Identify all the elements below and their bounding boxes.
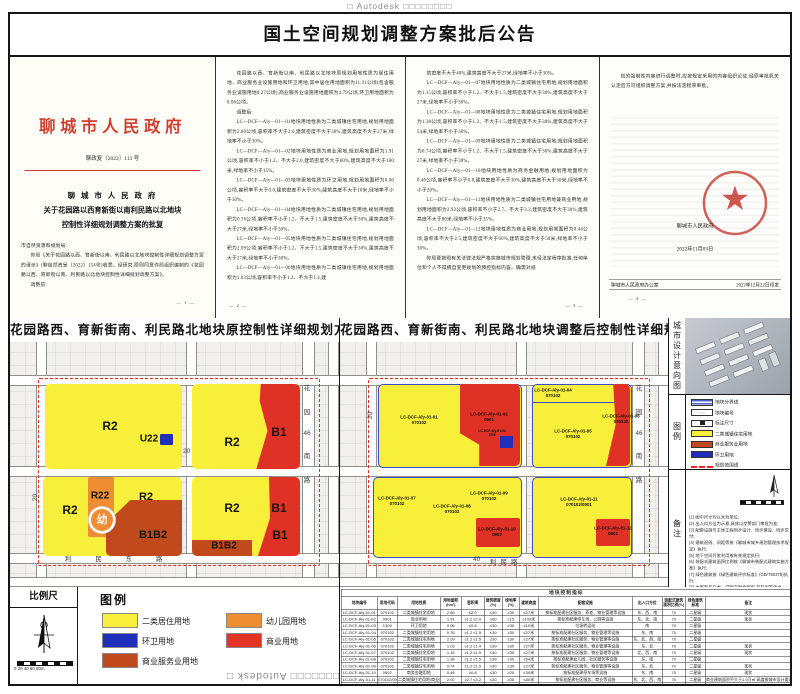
seal-date: 2022年11月03日 <box>600 245 790 253</box>
table-cell: 70 <box>662 636 685 643</box>
table-cell: ≥15 <box>502 616 519 623</box>
letter-title-line1: 聊 城 市 人 民 政 府 <box>10 190 215 201</box>
road-width-label: 20 <box>183 448 190 455</box>
notes-section: 备注 (1) 图中尺寸均以米为单位;(2) 出入口方位为示意,具体以交警部门审批… <box>669 470 790 587</box>
table-cell: 按标准配建社区服务、养老、物业管理等设施 <box>538 609 632 616</box>
table-cell: 2.09 <box>440 636 461 643</box>
table-cell: 70 <box>662 663 685 670</box>
table-cell: ≤100米 <box>519 616 538 623</box>
table-row: LC-DCF-Aly-01-08070102二类城镇住宅用地1.38≥1.2 ≤… <box>341 656 790 663</box>
table-cell: LC-DCF-Aly-01-03 <box>341 623 377 630</box>
table-cell: 70 <box>662 609 685 616</box>
letter-paragraph: LC—DCF—Aly—01—07地块用地性质为二类城镇住宅用地,规划用地面积为1… <box>417 79 588 108</box>
table-cell: 东、北 <box>632 663 662 670</box>
table-cell: 0901 <box>377 616 397 623</box>
table-cell: ≥1.2 ≤1.5 <box>461 656 484 663</box>
zone-label: R2 <box>62 503 77 517</box>
table-cell: 现状 <box>705 670 790 677</box>
design-intent-image <box>685 318 790 394</box>
table-cell: 按标准配建社区服务、物业管理等设施 <box>538 636 632 643</box>
table-cell: 商业用地 <box>397 616 440 623</box>
table-cell: ≥30 <box>502 643 519 650</box>
table-cell: ≥30 <box>502 663 519 670</box>
table-cell: ≥1.2 ≤1.5 <box>461 636 484 643</box>
letter-paragraph: LC—DCF—Aly—01—01地块用地性质为二类城镇住宅用地,规划用地面积为2… <box>227 118 394 147</box>
table-cell: ≤50米 <box>519 683 538 684</box>
table-cell: 二星级 <box>685 629 705 636</box>
zone-label: R2 <box>224 435 239 449</box>
letter-paragraphs: 划的强制性内容进行调整时,应按规定采用的内容组织论证,经原审批机关认定后方可组织… <box>611 72 779 91</box>
zone-label: B1B2 <box>139 529 167 541</box>
table-cell: ≥1.2 ≤1.5 <box>461 629 484 636</box>
table-cell: ≥30 <box>502 649 519 656</box>
table-cell: 070102 <box>377 656 397 663</box>
map-legend-title: 图例 <box>669 395 686 469</box>
table-cell <box>705 656 790 663</box>
table-cell: 1.91 <box>440 616 461 623</box>
table-cell: LC-DCF-Aly-01-05 <box>341 636 377 643</box>
zone-label: R2 <box>224 501 239 515</box>
table-row: LC-DCF-Aly-01-09070102二类城镇住宅用地0.74≥1.2 ≤… <box>341 663 790 670</box>
table-cell: 二星级 <box>685 683 705 684</box>
letter-paragraph: LC—DCF—Aly—01—09地块用地性质为二类城镇住宅用地,规划用地面积为0… <box>417 137 588 166</box>
table-cell: 070102/0901 <box>377 676 397 683</box>
table-cell: 0.44 <box>440 683 461 684</box>
control-indicators-panel: 地块控制指标 地块编号用地代码用地性质用地面积(hm²)容积率建筑密度(%)绿地… <box>340 587 790 684</box>
table-cell: ≤30 <box>484 676 502 683</box>
table-cell: ≤30 <box>484 649 502 656</box>
table-cell: 按标准配建社区服务、物业管理等设施 <box>538 629 632 636</box>
scale-panel: 比例尺 0 20 40 60 80m <box>10 587 78 684</box>
table-cell <box>705 629 790 636</box>
notes-list: (1) 图中尺寸均以米为单位;(2) 出入口方位为示意,具体以交警部门审批为准;… <box>689 514 789 587</box>
table-row: LC-DCF-Aly-01-120901商业用地0.44≤2.5≤60≥30≤5… <box>341 683 790 684</box>
table-cell: 北、西、南 <box>632 649 662 656</box>
letter-paragraph: LC—DCF—Aly—01—04地块用地性质为二类城镇住宅用地,规划用地面积为0… <box>227 205 394 234</box>
zone-label: B1B2 <box>211 541 237 552</box>
table-title: 地块控制指标 <box>341 589 790 597</box>
letter-paragraph: LC—DCF—Aly—01—05地块用地性质为二类城镇住宅用地,规划用地面积为2… <box>227 234 394 263</box>
table-cell: 二星级 <box>685 623 705 630</box>
control-indicators-table: 地块控制指标 地块编号用地代码用地性质用地面积(hm²)容积率建筑密度(%)绿地… <box>341 589 790 684</box>
design-intent-title: 城市设计意向图 <box>669 318 686 394</box>
parcel-label: LC-DCF-Aly-01-100902 <box>478 527 515 538</box>
note-line: (7) 绿色建筑按《绿色建筑评价标准》(GB/T50378)执行; <box>689 571 789 584</box>
parcel-label: LC-DCF-Aly-01-020901 <box>470 412 507 423</box>
table-cell: 70 <box>662 683 685 684</box>
table-header-row: 地块编号用地代码用地性质用地面积(hm²)容积率建筑密度(%)绿地率(%)建筑高… <box>341 597 790 610</box>
table-cell: ≥0.8 <box>461 670 484 677</box>
residential-swatch <box>691 430 713 437</box>
table-cell: 070102 <box>377 663 397 670</box>
table-cell: 二星级 <box>685 676 705 683</box>
letter-paragraph: 你局要按照有关法律法规严格实施城市规划管理,未经法定程序批准,任何单位和个人不得… <box>417 254 588 273</box>
letter-paragraphs: 筑密度不大于40%,建筑高度不大于27米,绿地率不小于30%。LC—DCF—Al… <box>417 69 588 273</box>
boundary-line-swatch <box>691 399 713 406</box>
aerial-render <box>685 318 790 395</box>
table-row: LC-DCF-Aly-01-020901商业用地1.91≥1.2 ≤2.0≤60… <box>341 616 790 623</box>
letter-paragraph: LC—DCF—Aly—01—12地块用地性质为商业用地,规划用地面积为0.44公… <box>417 225 588 254</box>
table-cell: 二星级 <box>685 643 705 650</box>
table-cell: 东、北、南 <box>632 616 662 623</box>
table-cell: 0901 <box>377 683 397 684</box>
letter-paragraph: 调整前: <box>21 280 204 290</box>
road <box>10 577 339 587</box>
map-adjusted-panel: 花园路西、育新街南、利民路北地块调整后控制性详细规划方案 <box>340 318 669 587</box>
letter-page-1: 聊城市人民政府 聊政复〔2022〕113 号 聊 城 市 人 民 政 府 关于花… <box>10 57 216 318</box>
table-cell: ≤54米 <box>519 656 538 663</box>
table-cell: ≤27米 <box>519 663 538 670</box>
page-number-1: — 1 — <box>177 300 196 305</box>
table-cell: 二星级 <box>685 656 705 663</box>
legend-label: 环卫用地 <box>142 636 174 647</box>
table-cell: ≤27米 <box>519 629 538 636</box>
zone-label: R2 <box>139 491 153 503</box>
table-cell: ≥1.2 ≤2.0 <box>461 616 484 623</box>
table-cell: 二星级 <box>685 663 705 670</box>
table-row: LC-DCF-Aly-01-07070102二类城镇住宅用地1.15≥1.2 ≤… <box>341 649 790 656</box>
map-original: R2 U22 R2 B1 R2 R22 幼 R2 B1B2 R2 B1 B1 B… <box>10 342 339 587</box>
table-cell: 按标准配建停车场、公厕等设施 <box>538 616 632 623</box>
table-cell: LC-DCF-Aly-01-02 <box>341 616 377 623</box>
autod esk-watermark-bottom: □□□□□□□ Autodesk □ <box>226 670 339 681</box>
table-cell: 0.46 <box>440 670 461 677</box>
scale-bar <box>740 500 784 505</box>
table-cell: 二类城镇住宅用地 <box>397 629 440 636</box>
table-cell: ≥30 <box>502 629 519 636</box>
table-cell: 70 <box>662 649 685 656</box>
imprint-date: 2022年12月22日印发 <box>736 281 779 288</box>
road-name-huayuan: 花 园 46 南 路 <box>632 382 646 484</box>
table-cell: ≤27米 <box>519 609 538 616</box>
page-number-4: — 4 — <box>628 296 647 301</box>
table-cell: ≥20 <box>502 670 519 677</box>
road-name-huayuan: 花 园 46 南 路 <box>300 382 314 484</box>
zone-label: B1 <box>271 425 286 439</box>
table-cell: 二类城镇住宅用地 <box>397 656 440 663</box>
table-cell: 二类城镇住宅用地 <box>397 663 440 670</box>
letterhead-rule <box>24 170 200 171</box>
table-row: LC-DCF-Aly-01-031309环卫用地0.06≤0.8≤30≥30≤1… <box>341 623 790 630</box>
table-cell: ≤30 <box>484 623 502 630</box>
table-cell: 二类城镇住宅用地 <box>397 643 440 650</box>
notes-title: 备注 <box>669 470 686 587</box>
letter-paragraph: LC—DCF—Aly—01—10地块用地性质为商务金融用地,规划用地面积为0.4… <box>417 166 588 195</box>
table-cell: ≥1.2 ≤1.4 <box>461 643 484 650</box>
scale-ticks: 0 20 40 60 80m <box>14 666 45 671</box>
table-cell: 二类城镇住宅用地 <box>397 649 440 656</box>
table-cell: LC-DCF-Aly-01-10 <box>341 670 377 677</box>
seal-agency-name: 聊城市人民政府 <box>600 222 790 230</box>
table-cell: LC-DCF-Aly-01-06 <box>341 643 377 650</box>
legend-swatch <box>102 653 138 668</box>
table-cell: 070102 <box>377 609 397 616</box>
doc-number: 聊政复〔2022〕113 号 <box>10 154 215 162</box>
table-cell: ≤27米 <box>519 636 538 643</box>
table-cell: 二星级 <box>685 616 705 623</box>
table-cell: ≥1.2 ≤1.5 <box>461 649 484 656</box>
table-cell: 现状 <box>705 663 790 670</box>
table-cell: 按标准配建社区服务、物业管理等设施 <box>538 643 632 650</box>
parcel-code-swatch: ··-·· <box>691 409 713 416</box>
table-cell: ≤60 <box>484 683 502 684</box>
imprint-line: 聊城市人民政府办公室 2022年12月22日印发 <box>609 279 781 290</box>
table-row: LC-DCF-Aly-01-01070102二类城镇住宅用地2.80≤2.0≤3… <box>341 609 790 616</box>
legend-swatch <box>102 633 138 648</box>
parcel-label: LC-DCF-Aly-01-07070102 <box>378 496 415 507</box>
map-legend-section: 图例 地块分界线 ··-··地块编号 标注尺寸 二类城镇住宅用地 商业服务业用地… <box>669 395 790 470</box>
table-cell: 现状 <box>705 683 790 684</box>
north-arrow-icon <box>766 474 782 498</box>
letter-title-line2: 关于花园路以西育新街以南利民路以北地块 <box>10 205 215 216</box>
table-cell: ≥1.2 ≤1.5 <box>461 663 484 670</box>
table-cell: ≥35 <box>502 676 519 683</box>
table-cell: LC-DCF-Aly-01-04 <box>341 629 377 636</box>
table-cell: 东、南 <box>632 683 662 684</box>
north-compass-icon <box>30 613 58 655</box>
boundary-dashed-swatch <box>691 466 713 468</box>
table-cell: ≤30 <box>484 656 502 663</box>
zone-label: B1 <box>272 528 287 542</box>
parcel-label: LC-DCF-Aly-01-05070102 <box>554 429 591 440</box>
table-cell: ≥30 <box>502 683 519 684</box>
table-cell: LC-DCF-Aly-01-12 <box>341 683 377 684</box>
table-cell: 现状 <box>705 649 790 656</box>
letter-paragraphs: 你局《关于花园路以西、育新街以南、利民路以北地块控制性详细规划调整方案的请示》(… <box>21 251 204 290</box>
autodesk-watermark-top: □ Autodesk □□□□□□□□ <box>0 1 800 11</box>
table-cell: LC-DCF-Aly-01-01 <box>341 609 377 616</box>
table-cell: 东、南 <box>632 656 662 663</box>
letter-paragraph: 你局《关于花园路以西、育新街以南、利民路以北地块控制性详细规划调整方案的请示》(… <box>21 251 204 280</box>
legend-label: 商业服务业用地 <box>142 656 198 667</box>
table-cell: 70 <box>662 676 685 683</box>
table-cell: 70 <box>662 670 685 677</box>
sheet-frame: 国土空间规划调整方案批后公告 聊城市人民政府 聊政复〔2022〕113 号 聊 … <box>8 12 792 686</box>
sanitation-swatch <box>691 451 713 458</box>
table-cell: 东、南 <box>632 670 662 677</box>
table-cell: 70 <box>662 616 685 623</box>
table-cell: 东、北、西、南 <box>632 636 662 643</box>
table-cell: LC-DCF-Aly-01-11 <box>341 676 377 683</box>
parcel-label: LC-DCF-Aly-01-09070102 <box>470 491 507 502</box>
table-cell: 0902 <box>377 670 397 677</box>
table-cell: 按标准配建停车场等设施 <box>538 683 632 684</box>
table-cell: 东、北 <box>632 643 662 650</box>
table-row: LC-DCF-Aly-01-06070102二类城镇住宅用地1.03≥1.2 ≤… <box>341 643 790 650</box>
table-cell: ≤30米 <box>519 670 538 677</box>
map-legend-items: 地块分界线 ··-··地块编号 标注尺寸 二类城镇住宅用地 商业服务业用地 环卫… <box>687 397 790 469</box>
table-cell: ≤10米 <box>519 623 538 630</box>
design-intent-section: 城市设计意向图 <box>669 318 790 395</box>
letter-paragraph: 调整后: <box>227 108 394 118</box>
table-cell: ≤27米 <box>519 643 538 650</box>
header: 国土空间规划调整方案批后公告 <box>10 14 790 57</box>
legend-label: 幼儿园用地 <box>266 616 306 627</box>
table-cell: ≤30 <box>484 643 502 650</box>
table-cell: LC-DCF-Aly-01-09 <box>341 663 377 670</box>
zone-label: B1 <box>271 501 286 515</box>
table-row: LC-DCF-Aly-01-05070102二类城镇住宅用地2.09≥1.2 ≤… <box>341 636 790 643</box>
table-cell: 二类城镇住宅用地/商业用地 <box>397 676 440 683</box>
table-cell: 1.38 <box>440 656 461 663</box>
table-cell: ≥2.7 ≤3.2 <box>461 676 484 683</box>
table-cell: ≥30 <box>502 656 519 663</box>
table-cell: 70 <box>662 643 685 650</box>
road-width-label: 20 <box>32 494 39 501</box>
table-cell: 环卫用地 <box>397 623 440 630</box>
table-cell: ≤30 <box>484 609 502 616</box>
table-cell <box>705 623 790 630</box>
note-line: (4) 建筑退线、间距等按《聊城市城乡规划管理技术规定》执行; <box>689 540 789 553</box>
table-cell: 2.80 <box>440 609 461 616</box>
table-cell: 70 <box>662 623 685 630</box>
letter-title-line3: 控制性详细规划调整方案的批复 <box>10 219 215 230</box>
table-body: LC-DCF-Aly-01-01070102二类城镇住宅用地2.80≤2.0≤3… <box>341 609 790 684</box>
letter-paragraph: 筑密度不大于40%,建筑高度不大于27米,绿地率不小于30%。 <box>417 69 588 79</box>
table-cell: ≤60 <box>484 616 502 623</box>
map-adjusted-title: 花园路西、育新街南、利民路北地块调整后控制性详细规划方案 <box>340 318 668 343</box>
table-cell: ≤0.8 <box>461 623 484 630</box>
table-cell: 70 <box>662 656 685 663</box>
note-line: (6) 装配式建筑面积比例按《聊城市装配式建筑实施方案》执行; <box>689 559 789 572</box>
table-cell: ≤2.0 <box>461 609 484 616</box>
table-cell: LC-DCF-Aly-01-07 <box>341 649 377 656</box>
note-line: (3) 配套设施与主体工程同步设计、同步建设、同步交付; <box>689 527 789 540</box>
road-width-label: 20 <box>367 412 374 419</box>
page-number-3: — 3 — <box>566 303 585 308</box>
road-width-label: 40 <box>473 556 480 563</box>
parcel-label: LC-DCF-Aly-01-08070102 <box>433 504 470 515</box>
page-number-2: — 2 — <box>229 303 248 308</box>
letter-paragraph: LC—DCF—Aly—01—11地块用地性质为二类城镇住宅用地兼商业用地,规划用… <box>417 196 588 225</box>
legend-label: 二类居住用地 <box>142 616 190 627</box>
table-cell: ≥30 <box>502 623 519 630</box>
table-cell: ≥30 <box>502 636 519 643</box>
letter-page-2: 花园路以西、育新街以南、利民路以北地块原规划用地性质为居住用地、商业服务业设施用… <box>216 57 406 318</box>
legend-swatch <box>102 613 138 628</box>
table-cell: 0.76 <box>440 629 461 636</box>
dimension-swatch <box>691 420 713 427</box>
scale-title: 比例尺 <box>10 587 77 608</box>
table-cell: ≤30 <box>484 636 502 643</box>
table-cell: 070102 <box>377 649 397 656</box>
road-name-limin: 利 民 东 路 <box>65 553 173 563</box>
table-cell: 东、西、南 <box>632 609 662 616</box>
table-cell: ≤80米 <box>519 676 538 683</box>
zone-label: R22 <box>91 491 109 502</box>
zone-label: U22 <box>140 434 158 445</box>
legend-label: 商业用地 <box>266 636 298 647</box>
parcel-label: LC-DCF-Aly-01-04070102 <box>534 388 571 399</box>
table-cell: 按标准配建社区服务、物业管理等设施 <box>538 663 632 670</box>
letter-paragraph: 花园路以西、育新街以南、利民路以北地块原规划用地性质为居住用地、商业服务业设施用… <box>227 69 394 108</box>
legend-swatch <box>226 633 262 648</box>
table-cell: ≤30 <box>484 663 502 670</box>
table-row: LC-DCF-Aly-01-11070102/0901二类城镇住宅用地/商业用地… <box>341 676 790 683</box>
table-cell: 70 <box>662 629 685 636</box>
imprint-office: 聊城市人民政府办公室 <box>611 281 659 288</box>
planning-boundary <box>368 378 650 566</box>
letter-paragraph: 划的强制性内容进行调整时,应按规定采用的内容组织论证,经原审批机关认定后方可组织… <box>611 72 779 91</box>
kindergarten-badge: 幼 <box>89 507 115 533</box>
table-cell: 二星级 <box>685 670 705 677</box>
table-cell: 070102 <box>377 636 397 643</box>
road <box>340 577 668 587</box>
table-cell: 二星级 <box>685 609 705 616</box>
table-cell: 1.15 <box>440 649 461 656</box>
letter-paragraph: LC—DCF—Aly—01—02地块用地性质为商业用地,规划用地面积为1.91公… <box>227 147 394 176</box>
map-original-title: 花园路西、育新街南、利民路北地块原控制性详细规划方案 <box>10 318 339 343</box>
parcel-label: LC-DCF-Aly-01-031309 <box>478 429 505 437</box>
table-cell: ≥30 <box>502 609 519 616</box>
table-cell: 0.06 <box>440 623 461 630</box>
table-row: LC-DCF-Aly-01-100902商务金融用地0.46≥0.8≤30≥20… <box>341 670 790 677</box>
table-cell: 二类城镇住宅用地 <box>397 609 440 616</box>
table-cell: 商务金融用地 <box>397 670 440 677</box>
commercial-service-swatch <box>691 441 713 448</box>
table-cell: ≤30 <box>484 670 502 677</box>
table-cell <box>705 636 790 643</box>
table-cell: 现状 <box>705 616 790 623</box>
table-cell: 1309 <box>377 623 397 630</box>
letter-salutation: 市自然资源和规划局: <box>21 242 204 252</box>
table-cell: 现状 <box>705 609 790 616</box>
table-cell: 按标准配建社区服务、商业等设施 <box>538 676 632 683</box>
map-adjusted: LC-DCF-Aly-01-01070102 LC-DCF-Aly-01-020… <box>340 342 668 587</box>
table-cell: 东、北、西、南 <box>632 676 662 683</box>
table-cell: ≤30 <box>484 629 502 636</box>
letter-page-4: 划的强制性内容进行调整时,应按规定采用的内容组织论证,经原审批机关认定后方可组织… <box>600 57 790 318</box>
table-cell: 现状 <box>705 643 790 650</box>
table-cell: 按标准配建停车场等设施 <box>538 670 632 677</box>
table-cell: ≤27米 <box>519 649 538 656</box>
table-cell: 商业建筑面积不大于1.0万㎡,高度按城市设计要求执行 <box>705 676 790 683</box>
announcement-sheet: □ Autodesk □□□□□□□□ 国土空间规划调整方案批后公告 聊城市人民… <box>0 0 800 694</box>
page-title: 国土空间规划调整方案批后公告 <box>10 14 790 55</box>
letter-paragraphs: 花园路以西、育新街以南、利民路以北地块原规划用地性质为居住用地、商业服务业设施用… <box>227 69 394 283</box>
table-cell: 垃圾转运站 <box>538 623 632 630</box>
table-cell: 按标准配建幼儿园、社区服务等设施 <box>538 656 632 663</box>
note-line: (2) 出入口方位为示意,具体以交警部门审批为准; <box>689 520 789 526</box>
table-row: LC-DCF-Aly-01-04070102二类城镇住宅用地0.76≥1.2 ≤… <box>341 629 790 636</box>
table-cell: 东、南 <box>632 629 662 636</box>
table-cell: 1.03 <box>440 643 461 650</box>
road-name-limin: 利民路 <box>490 556 522 566</box>
legend-swatch <box>226 613 262 628</box>
table-cell: 二星级 <box>685 649 705 656</box>
table-cell: 0.74 <box>440 663 461 670</box>
letter-paragraph: LC—DCF—Aly—01—08地块用地性质为二类城镇住宅用地,规划用地面积为1… <box>417 108 588 137</box>
letter-page-3: 筑密度不大于40%,建筑高度不大于27米,绿地率不小于30%。LC—DCF—Al… <box>406 57 600 318</box>
parcel-label: LC-DCF-Aly-01-120901 <box>594 526 631 537</box>
table-cell: 2.92 <box>440 676 461 683</box>
parcel-label: LC-DCF-Aly-01-11070102/0901 <box>560 497 597 508</box>
table-cell: 二星级 <box>685 636 705 643</box>
table-cell: 070102 <box>377 629 397 636</box>
letter-paragraph: LC—DCF—Aly—01—06地块用地性质为二类城镇住宅用地,规划用地面积为1… <box>227 264 394 283</box>
table-cell: ≤2.5 <box>461 683 484 684</box>
table-cell: 商业用地 <box>397 683 440 684</box>
zone-label: R2 <box>102 419 117 433</box>
table-cell: 按标准配建社区服务、物业管理等设施 <box>538 649 632 656</box>
legend-title: 图例 <box>100 591 128 608</box>
parcel-label: LC-DCF-Aly-01-01070102 <box>400 415 437 426</box>
table-cell: 070102 <box>377 643 397 650</box>
table-cell: LC-DCF-Aly-01-08 <box>341 656 377 663</box>
letter-paragraph: LC—DCF—Aly—01—03地块用地性质为环卫用地,规划用地面积为0.06公… <box>227 176 394 205</box>
letterhead-agency: 聊城市人民政府 <box>10 113 215 137</box>
map-original-panel: 花园路西、育新街南、利民路北地块原控制性详细规划方案 <box>10 318 340 587</box>
